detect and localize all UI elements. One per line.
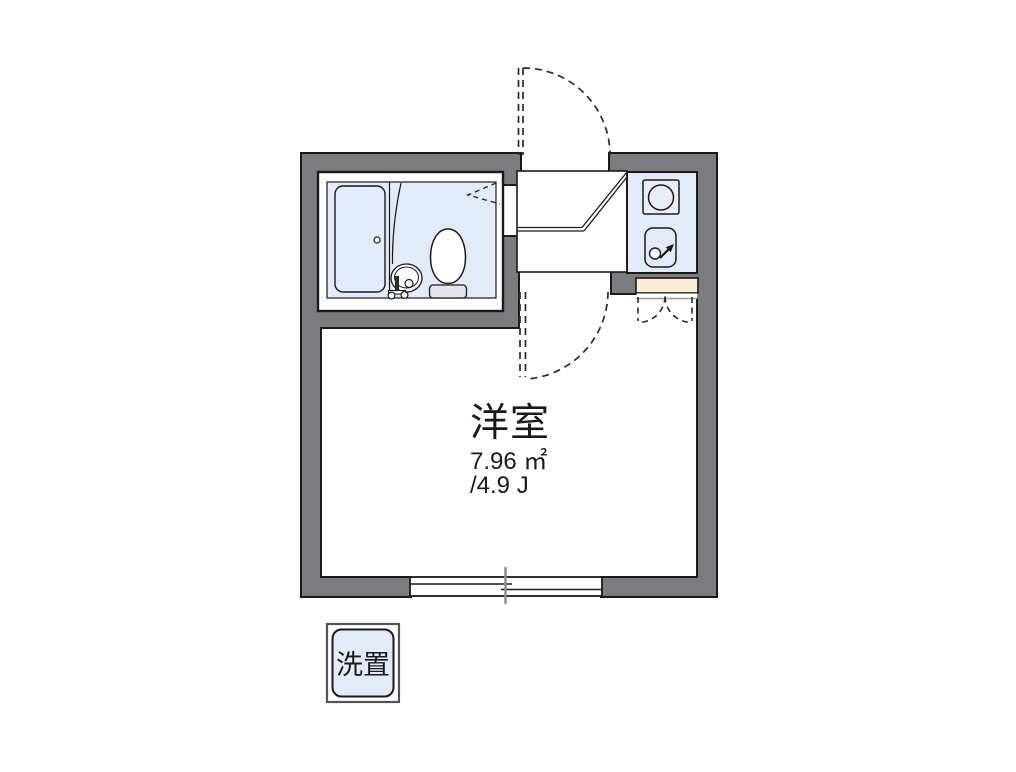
room-tatami-label: /4.9 J (470, 474, 529, 497)
floor-plan-drawing (0, 0, 1016, 772)
wall-bathroom-right (502, 237, 518, 327)
wall-bottom-right (602, 578, 716, 596)
shoe-cabinet (636, 278, 698, 299)
laundry-box-label: 洗置 (332, 629, 394, 696)
kitchen (627, 172, 697, 273)
wall-right (698, 154, 716, 596)
wall-top-left (302, 154, 520, 172)
entrance-hall (517, 171, 627, 272)
floor-plan: 洋室 7.96 ㎡ /4.9 J 洗置 (0, 0, 1016, 772)
sliding-window (410, 567, 602, 604)
stove-icon (643, 180, 679, 214)
room-area-label: 7.96 ㎡ (470, 450, 547, 474)
room-labels: 洋室 7.96 ㎡ /4.9 J (470, 401, 550, 497)
room-name-label: 洋室 (470, 401, 550, 447)
wall-bathroom-right-top (502, 172, 518, 184)
wall-below-bathroom (302, 311, 518, 327)
room-door-swing (520, 292, 608, 379)
bathroom (318, 172, 503, 311)
entrance-door-swing (519, 68, 611, 155)
wall-door-pier (612, 272, 638, 293)
wall-bottom-left (302, 578, 410, 596)
closet-door-swing (638, 297, 692, 323)
toilet-icon (430, 229, 467, 298)
